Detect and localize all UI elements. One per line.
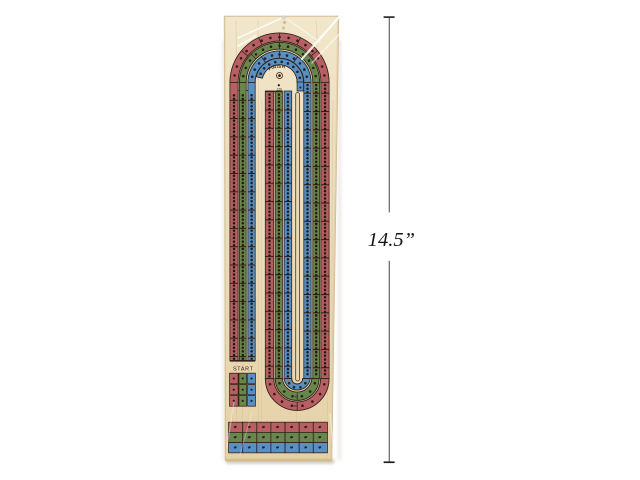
svg-text:60: 60 xyxy=(294,404,298,408)
svg-text:14.5”: 14.5” xyxy=(368,229,415,251)
svg-text:START: START xyxy=(233,367,254,373)
svg-text:60: 60 xyxy=(295,395,299,399)
